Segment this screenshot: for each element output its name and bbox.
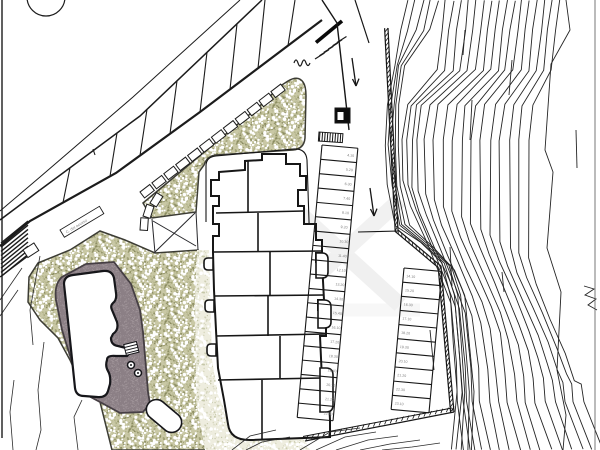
svg-text:4.10: 4.10 [347, 153, 354, 158]
svg-text:18.30: 18.30 [329, 354, 338, 359]
svg-text:22.30: 22.30 [323, 411, 332, 416]
svg-text:5.20: 5.20 [346, 168, 353, 173]
svg-text:6.30: 6.30 [344, 182, 351, 187]
svg-text:23.10: 23.10 [394, 402, 403, 407]
svg-text:22.30: 22.30 [396, 387, 405, 392]
svg-text:21.20: 21.20 [397, 373, 406, 378]
svg-text:12.10: 12.10 [337, 268, 346, 273]
svg-text:16.10: 16.10 [331, 325, 340, 330]
svg-text:21.20: 21.20 [325, 397, 334, 402]
svg-text:18.20: 18.20 [401, 331, 410, 336]
svg-text:15.40: 15.40 [333, 311, 342, 316]
svg-text:17.20: 17.20 [330, 340, 339, 345]
svg-text:20.10: 20.10 [398, 359, 407, 364]
svg-text:14.30: 14.30 [334, 297, 343, 302]
svg-text:17.10: 17.10 [402, 317, 411, 322]
svg-text:15.20: 15.20 [405, 288, 414, 293]
svg-text:16.30: 16.30 [404, 303, 413, 308]
svg-text:14.10: 14.10 [406, 274, 415, 279]
svg-text:20.10: 20.10 [326, 383, 335, 388]
svg-text:9.20: 9.20 [340, 225, 347, 230]
svg-text:8.10: 8.10 [342, 211, 349, 216]
svg-text:19.40: 19.40 [327, 368, 336, 373]
svg-text:19.30: 19.30 [400, 345, 409, 350]
svg-text:13.20: 13.20 [335, 282, 344, 287]
svg-text:7.40: 7.40 [343, 196, 350, 201]
svg-text:10.30: 10.30 [339, 239, 348, 244]
svg-text:11.40: 11.40 [338, 254, 347, 259]
